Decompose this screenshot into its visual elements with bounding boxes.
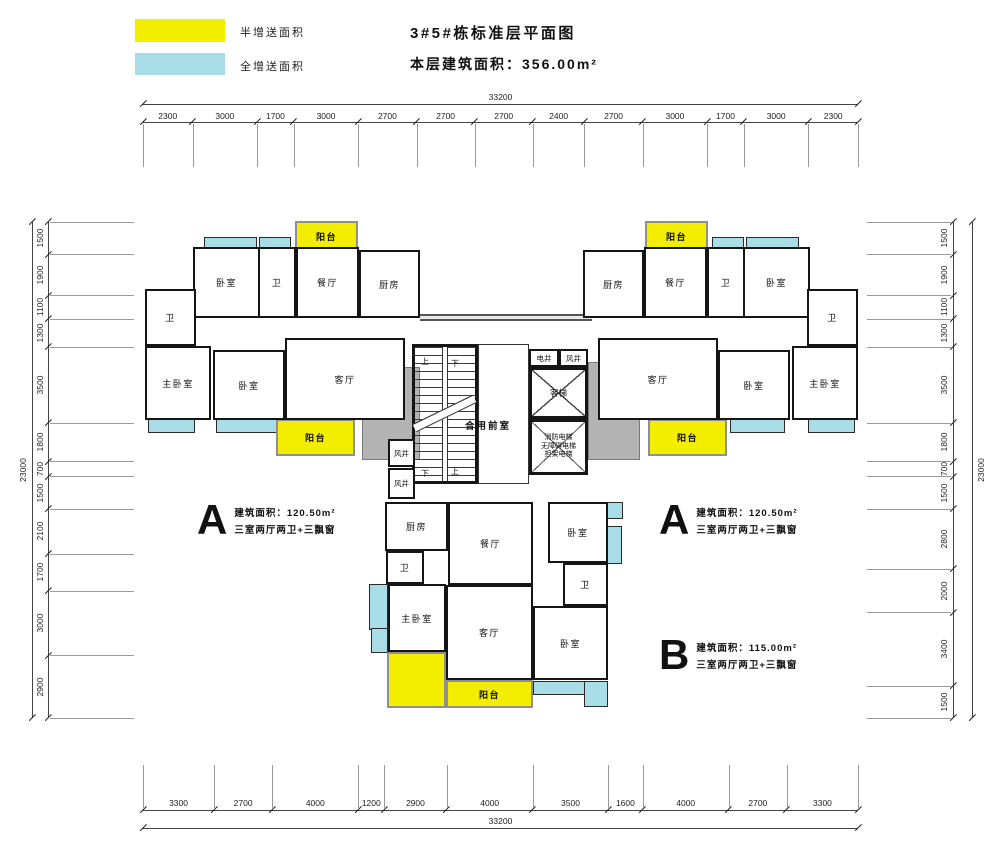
dim-segment-value: 2900 <box>401 798 429 808</box>
dim-segment-value: 2700 <box>229 798 257 808</box>
dim-segment-value: 1800 <box>35 427 45 457</box>
dim-segment-value: 2400 <box>545 111 573 121</box>
dim-segment-value: 4000 <box>476 798 504 808</box>
dim-ext-line <box>858 124 859 167</box>
dim-ext-line <box>867 612 951 613</box>
unit-letter: A <box>197 500 227 540</box>
bedroom-bot-left: 卧室 <box>213 350 285 420</box>
dim-ext-line <box>50 295 134 296</box>
dim-total-value: 23000 <box>976 454 986 486</box>
dim-ext-line <box>50 254 134 255</box>
dim-ext-line <box>867 718 951 719</box>
master-b: 主卧室 <box>388 584 446 652</box>
dim-tick <box>968 714 975 721</box>
dim-segment-value: 4000 <box>672 798 700 808</box>
bedroom-bot-left-label: 卧室 <box>238 379 259 392</box>
bay-right-3 <box>730 418 785 433</box>
dim-ext-line <box>867 423 951 424</box>
dim-segment-value: 2300 <box>819 111 847 121</box>
dim-ext-line <box>272 765 273 808</box>
bedroom-b-top: 卧室 <box>548 502 608 563</box>
bedroom-bot-right: 卧室 <box>718 350 790 420</box>
dim-total-value: 33200 <box>485 92 517 102</box>
unit-desc: 三室两厅两卫+三飘窗 <box>234 522 335 536</box>
unit-area: 建筑面积：115.00m² <box>696 640 797 654</box>
bath-far-left-label: 卫 <box>165 311 176 324</box>
dim-total-line <box>32 222 33 718</box>
bay-right-4 <box>808 418 855 433</box>
shaft-wind-1: 风井 <box>388 439 415 467</box>
dim-ext-line <box>143 124 144 167</box>
dining-left-label: 餐厅 <box>317 276 338 289</box>
legend-swatch-half <box>135 19 225 42</box>
window-wall-top <box>420 314 592 321</box>
dim-ext-line <box>143 765 144 808</box>
dim-segment-value: 3500 <box>939 370 949 400</box>
dim-segment-value: 1600 <box>611 798 639 808</box>
bath-mid-left-label: 卫 <box>272 276 283 289</box>
dim-ext-line <box>50 423 134 424</box>
bedroom-b-bot: 卧室 <box>533 606 608 680</box>
living-right: 客厅 <box>598 338 718 420</box>
floorplan-sheet: 半增送面积 全增送面积 3#5#栋标准层平面图 本层建筑面积：356.00m² … <box>0 0 1000 853</box>
dim-ext-line <box>608 765 609 808</box>
elevator-fire-label-2: 担架电梯 <box>545 451 573 460</box>
dim-ext-line <box>257 124 258 167</box>
bedroom-top-left-label: 卧室 <box>216 276 237 289</box>
dim-ext-line <box>417 124 418 167</box>
kitchen-b-label: 厨房 <box>406 520 427 533</box>
unit-desc: 三室两厅两卫+三飘窗 <box>696 657 797 671</box>
dim-segment-value: 3000 <box>35 608 45 638</box>
bay-left-4 <box>216 418 285 433</box>
dim-segment-value: 3400 <box>939 634 949 664</box>
dim-tick <box>854 824 861 831</box>
dim-segment-value: 2900 <box>35 672 45 702</box>
dim-ext-line <box>867 569 951 570</box>
dim-segment-value: 2700 <box>373 111 401 121</box>
dim-segment-value: 2700 <box>600 111 628 121</box>
dim-segment-value: 1500 <box>35 478 45 508</box>
dim-ext-line <box>50 655 134 656</box>
dim-segment-value: 2700 <box>744 798 772 808</box>
dim-ext-line <box>50 319 134 320</box>
dim-ext-line <box>50 591 134 592</box>
bath-b-right: 卫 <box>563 563 608 606</box>
dim-ext-line <box>50 509 134 510</box>
bay-b-5 <box>533 681 588 695</box>
unit-area: 建筑面积：120.50m² <box>696 505 797 519</box>
balcony-bot-left: 阳台 <box>276 419 355 456</box>
elevator-passenger: 客梯 <box>529 367 588 419</box>
stair-down-top: 下 <box>448 358 462 368</box>
shaft-wind-top: 风井 <box>559 349 588 367</box>
kitchen-right: 厨房 <box>583 250 644 318</box>
dim-ext-line <box>358 124 359 167</box>
dim-segment-value: 1500 <box>939 478 949 508</box>
bedroom-b-top-label: 卧室 <box>567 526 588 539</box>
unit-label-b: B 建筑面积：115.00m² 三室两厅两卫+三飘窗 <box>659 635 797 675</box>
bedroom-b-bot-label: 卧室 <box>560 637 581 650</box>
balcony-bot-right: 阳台 <box>648 419 727 456</box>
dim-ext-line <box>867 509 951 510</box>
dim-segment-value: 3000 <box>762 111 790 121</box>
dim-segment-value: 2700 <box>432 111 460 121</box>
dining-b-label: 餐厅 <box>480 537 501 550</box>
living-left-label: 客厅 <box>334 373 355 386</box>
bath-b-right-label: 卫 <box>580 578 591 591</box>
bay-b-1 <box>369 584 388 630</box>
master-right: 主卧室 <box>792 346 858 420</box>
dim-segment-value: 3300 <box>808 798 836 808</box>
dim-ext-line <box>643 124 644 167</box>
dim-ext-line <box>584 124 585 167</box>
dim-ext-line <box>867 254 951 255</box>
bath-b-left: 卫 <box>386 551 424 584</box>
dim-tick <box>854 100 861 107</box>
dining-left: 餐厅 <box>296 247 359 318</box>
kitchen-left-label: 厨房 <box>379 278 400 291</box>
floor-area-title: 本层建筑面积：356.00m² <box>410 54 598 74</box>
front-room-label: 合用前室 <box>448 418 528 432</box>
master-left-label: 主卧室 <box>162 377 194 390</box>
front-room <box>478 344 529 484</box>
legend-label-full: 全增送面积 <box>240 58 305 74</box>
dim-ext-line <box>50 222 134 223</box>
dining-right-label: 餐厅 <box>665 276 686 289</box>
dim-ext-line <box>50 347 134 348</box>
unit-letter: B <box>659 635 689 675</box>
legend-label-half: 半增送面积 <box>240 24 305 40</box>
bedroom-top-right: 卧室 <box>743 247 810 318</box>
dim-ext-line <box>475 124 476 167</box>
bath-mid-left: 卫 <box>258 247 296 318</box>
dim-ext-line <box>193 124 194 167</box>
dim-ext-line <box>858 765 859 808</box>
dim-segment-value: 4000 <box>301 798 329 808</box>
dim-segment-value: 3500 <box>35 370 45 400</box>
dim-ext-line <box>787 765 788 808</box>
dim-ext-line <box>50 476 134 477</box>
dim-segment-value: 3000 <box>211 111 239 121</box>
dim-ext-line <box>808 124 809 167</box>
elevator-fire: 消防电梯无障碍电梯担架电梯 <box>529 419 588 475</box>
unit-label-a-right: A 建筑面积：120.50m² 三室两厅两卫+三飘窗 <box>659 500 798 540</box>
dim-segment-value: 3000 <box>312 111 340 121</box>
dim-ext-line <box>50 461 134 462</box>
dim-ext-line <box>533 124 534 167</box>
dim-ext-line <box>533 765 534 808</box>
unit-letter: A <box>659 500 689 540</box>
dim-segment-value: 2800 <box>939 524 949 554</box>
bedroom-top-right-label: 卧室 <box>766 276 787 289</box>
balcony-b-bottom: 阳台 <box>446 680 533 708</box>
bay-b-6 <box>584 681 608 707</box>
dim-segment-value: 2000 <box>939 576 949 606</box>
stair-up-top: 上 <box>418 356 432 366</box>
dim-segment-value: 1900 <box>35 260 45 290</box>
dim-ext-line <box>643 765 644 808</box>
dim-total-value: 33200 <box>485 816 517 826</box>
dim-segment-value: 1200 <box>357 798 385 808</box>
dim-segment-value: 1300 <box>35 318 45 348</box>
dining-right: 餐厅 <box>644 247 707 318</box>
bath-far-left: 卫 <box>145 289 196 346</box>
living-right-label: 客厅 <box>647 373 668 386</box>
dim-segment-value: 1700 <box>261 111 289 121</box>
bath-far-right-label: 卫 <box>827 311 838 324</box>
kitchen-left: 厨房 <box>359 250 420 318</box>
dim-ext-line <box>294 124 295 167</box>
master-left: 主卧室 <box>145 346 211 420</box>
dim-seg-line <box>143 122 858 123</box>
dim-ext-line <box>729 765 730 808</box>
dim-tick <box>28 714 35 721</box>
dim-ext-line <box>50 718 134 719</box>
dim-segment-value: 1800 <box>939 427 949 457</box>
master-b-label: 主卧室 <box>401 612 433 625</box>
bath-mid-right-label: 卫 <box>721 276 732 289</box>
dim-segment-value: 3000 <box>661 111 689 121</box>
dim-segment-value: 3500 <box>556 798 584 808</box>
living-left: 客厅 <box>285 338 405 420</box>
bedroom-top-left: 卧室 <box>193 247 260 318</box>
bath-b-left-label: 卫 <box>400 561 411 574</box>
dim-segment-value: 3300 <box>165 798 193 808</box>
dim-segment-value: 1500 <box>939 687 949 717</box>
dim-total-value: 23000 <box>18 454 28 486</box>
balcony-b-left <box>387 652 446 708</box>
dim-ext-line <box>707 124 708 167</box>
dim-segment-value: 1900 <box>939 260 949 290</box>
stair-down-bot: 下 <box>418 468 432 478</box>
unit-area: 建筑面积：120.50m² <box>234 505 335 519</box>
dim-segment-value: 2300 <box>154 111 182 121</box>
bay-b-3 <box>607 502 623 519</box>
bedroom-bot-right-label: 卧室 <box>743 379 764 392</box>
bath-mid-right: 卫 <box>707 247 745 318</box>
living-b-label: 客厅 <box>479 626 500 639</box>
title-block: 3#5#栋标准层平面图 本层建筑面积：356.00m² <box>410 22 598 74</box>
bay-b-2 <box>371 628 388 653</box>
bath-far-right: 卫 <box>807 289 858 346</box>
master-right-label: 主卧室 <box>809 377 841 390</box>
dim-segment-value: 2700 <box>490 111 518 121</box>
dim-ext-line <box>214 765 215 808</box>
dining-b: 餐厅 <box>448 502 533 585</box>
kitchen-right-label: 厨房 <box>603 278 624 291</box>
shaft-wind-2: 风井 <box>388 468 415 499</box>
shaft-electric: 电井 <box>529 349 559 367</box>
elevator-fire-label-1: 无障碍电梯 <box>541 443 576 452</box>
living-b: 客厅 <box>446 585 533 680</box>
dim-segment-value: 1300 <box>939 318 949 348</box>
dim-segment-value: 2100 <box>35 516 45 546</box>
elevator-fire-label-0: 消防电梯 <box>545 434 573 443</box>
dim-segment-value: 1500 <box>35 223 45 253</box>
dim-segment-value: 1500 <box>939 223 949 253</box>
dim-ext-line <box>744 124 745 167</box>
sheet-title: 3#5#栋标准层平面图 <box>410 22 598 43</box>
dim-total-line <box>143 828 858 829</box>
dim-segment-value: 1700 <box>35 557 45 587</box>
dim-total-line <box>972 222 973 718</box>
dim-segment-value: 1700 <box>712 111 740 121</box>
unit-desc: 三室两厅两卫+三飘窗 <box>696 522 797 536</box>
bay-left-3 <box>148 418 195 433</box>
dim-total-line <box>143 104 858 105</box>
dim-ext-line <box>447 765 448 808</box>
dim-ext-line <box>50 554 134 555</box>
kitchen-b: 厨房 <box>385 502 448 551</box>
stair-up-bot: 上 <box>448 466 462 476</box>
legend-swatch-full <box>135 53 225 75</box>
unit-label-a-left: A 建筑面积：120.50m² 三室两厅两卫+三飘窗 <box>197 500 336 540</box>
dim-seg-line <box>143 810 858 811</box>
